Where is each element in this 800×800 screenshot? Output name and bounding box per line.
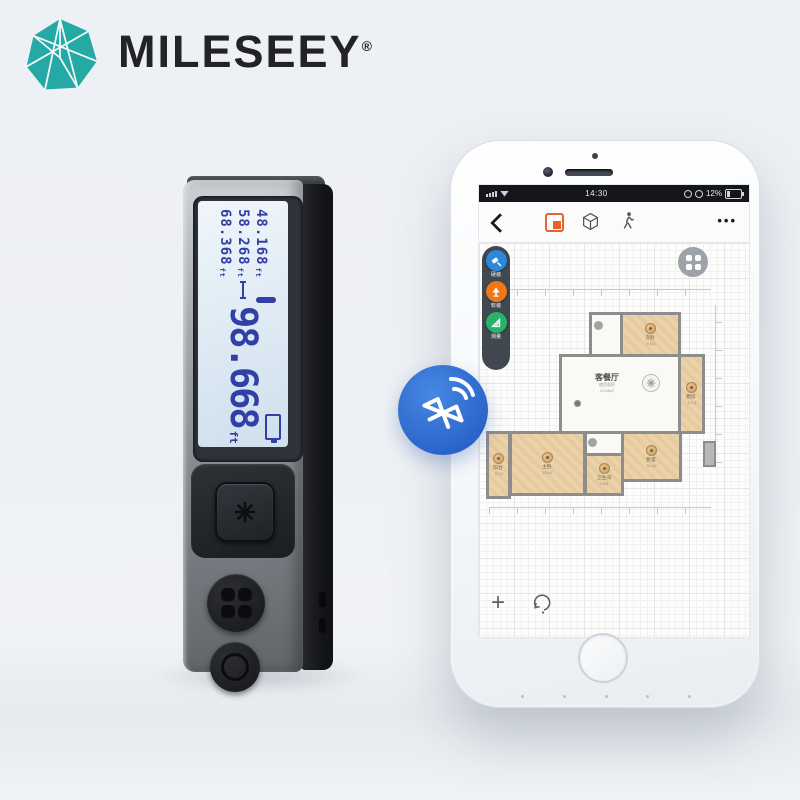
device-button-panel [191, 464, 295, 558]
proximity-sensor [592, 153, 598, 159]
set-square-icon [490, 317, 502, 329]
laser-distance-meter: 48.168ft 58.268ft 68.368ft 98.668 ft [183, 180, 333, 674]
door-marker [594, 321, 603, 330]
power-ring-icon [221, 653, 249, 681]
battery-icon [725, 189, 742, 199]
tool-soft-deco[interactable]: 软装 [486, 281, 507, 310]
device-reference-icon [256, 297, 276, 303]
battery-percent: 12% [706, 189, 722, 198]
room-living-dining[interactable] [559, 354, 681, 434]
room-icon [542, 452, 553, 463]
tool-label: 硬装 [491, 273, 501, 279]
menu-dot [221, 588, 235, 602]
laser-tool-icon [490, 255, 502, 267]
lcd-main-reading: 98.668 ft [224, 306, 262, 444]
laser-star-icon [232, 499, 258, 525]
battery-indicator-icon [265, 414, 281, 440]
power-button[interactable] [210, 642, 260, 692]
status-right-icons: 12% [684, 189, 742, 199]
components-button[interactable] [678, 247, 708, 277]
device-side-face [301, 184, 333, 670]
lcd-history-row: 48.168ft [254, 209, 269, 278]
lcd-readout: 48.168ft 58.268ft 68.368ft 98.668 ft [198, 201, 288, 447]
brand-name: MILESEEY® [118, 26, 374, 78]
phone-screen: 14:30 12% [479, 185, 749, 637]
dimension-line-top [489, 289, 711, 296]
room-icon [686, 382, 697, 393]
plant-icon [574, 400, 581, 407]
menu-button[interactable] [207, 574, 265, 632]
bluetooth-badge [398, 365, 488, 455]
grid-dot [686, 255, 692, 261]
back-button[interactable] [490, 213, 510, 233]
plan-2d-view-button[interactable] [545, 213, 564, 232]
grid-dot [695, 264, 701, 270]
registered-mark: ® [362, 38, 374, 54]
walkthrough-view-button[interactable] [619, 211, 638, 236]
cube-icon [581, 212, 600, 231]
device-lcd-screen: 48.168ft 58.268ft 68.368ft 98.668 ft [198, 201, 288, 447]
ac-unit-box [703, 441, 716, 467]
grid-dot [695, 255, 701, 261]
room-master-bedroom[interactable]: 主卧 12.9㎡ [509, 431, 586, 496]
bluetooth-icon [398, 365, 488, 455]
soft-deco-button[interactable] [486, 281, 507, 302]
earpiece-speaker [565, 169, 613, 176]
tool-hard-deco[interactable]: 硬装 [486, 250, 507, 279]
app-toolbar: ••• [479, 202, 749, 243]
lcd-history-row: 68.368ft [218, 209, 233, 278]
bottom-ports [521, 695, 691, 698]
gem-logo-icon [16, 12, 104, 100]
side-slot [319, 592, 326, 607]
device-lcd-frame: 48.168ft 58.268ft 68.368ft 98.668 ft [193, 196, 303, 462]
wifi-icon [500, 191, 509, 197]
device-front-face: 48.168ft 58.268ft 68.368ft 98.668 ft [183, 180, 303, 672]
dimension-line-bottom [489, 507, 711, 514]
product-banner: MILESEEY® 48.168ft 58.268ft 68.368ft [0, 0, 800, 800]
front-camera [543, 167, 553, 177]
room-icon [493, 453, 504, 464]
room-icon [599, 463, 610, 474]
walking-person-icon [619, 211, 638, 231]
side-slot [319, 618, 326, 633]
undo-button[interactable] [531, 593, 553, 620]
room-kitchen[interactable]: 厨房 5.2㎡ [678, 354, 705, 434]
tool-rail: 硬装 软装 [482, 246, 510, 370]
undo-arrow-icon [531, 593, 553, 615]
menu-dot [221, 605, 235, 619]
smartphone: 14:30 12% [450, 140, 760, 708]
room-icon [645, 323, 656, 334]
room-icon [646, 445, 657, 456]
room-bathroom[interactable]: 卫生间 3.8㎡ [584, 453, 624, 496]
room-bedroom-right[interactable]: 卧室 10.4㎡ [621, 431, 682, 482]
signal-icon [486, 191, 497, 197]
living-room-label: 客餐厅 使用面积 23.66㎡ [575, 373, 639, 394]
alarm-icon [695, 190, 703, 198]
measure-button[interactable] [215, 482, 275, 542]
lamp-icon [490, 286, 502, 298]
status-bar: 14:30 12% [479, 185, 749, 202]
tool-label: 测量 [491, 335, 501, 341]
view-3d-button[interactable] [581, 212, 600, 236]
dimension-line-right [715, 305, 722, 463]
floorplan-canvas[interactable]: 硬装 软装 [479, 243, 749, 637]
brand-logo: MILESEEY® [16, 12, 374, 100]
measure-line-icon [242, 281, 244, 299]
room-balcony[interactable]: 阳台 3.2㎡ [486, 431, 511, 499]
status-left-icons [486, 191, 509, 197]
door-marker [588, 438, 597, 447]
clock-time: 14:30 [509, 189, 684, 198]
home-button[interactable] [578, 633, 628, 683]
tool-measure[interactable]: 测量 [486, 312, 507, 341]
grid-dot [686, 264, 692, 270]
menu-dot [238, 605, 252, 619]
room-bedroom-top[interactable]: 次卧 8.6㎡ [620, 312, 681, 357]
sync-icon [684, 190, 692, 198]
more-menu-button[interactable]: ••• [717, 213, 737, 228]
ceiling-fan-icon [642, 374, 660, 392]
measure-tool-button[interactable] [486, 312, 507, 333]
lcd-history-row: 58.268ft [236, 209, 251, 278]
add-button[interactable]: + [491, 591, 505, 615]
menu-dot [238, 588, 252, 602]
tool-label: 软装 [491, 304, 501, 310]
lcd-history-readings: 48.168ft 58.268ft 68.368ft [218, 209, 269, 278]
hard-deco-button[interactable] [486, 250, 507, 271]
lcd-reference-icons [198, 278, 288, 306]
